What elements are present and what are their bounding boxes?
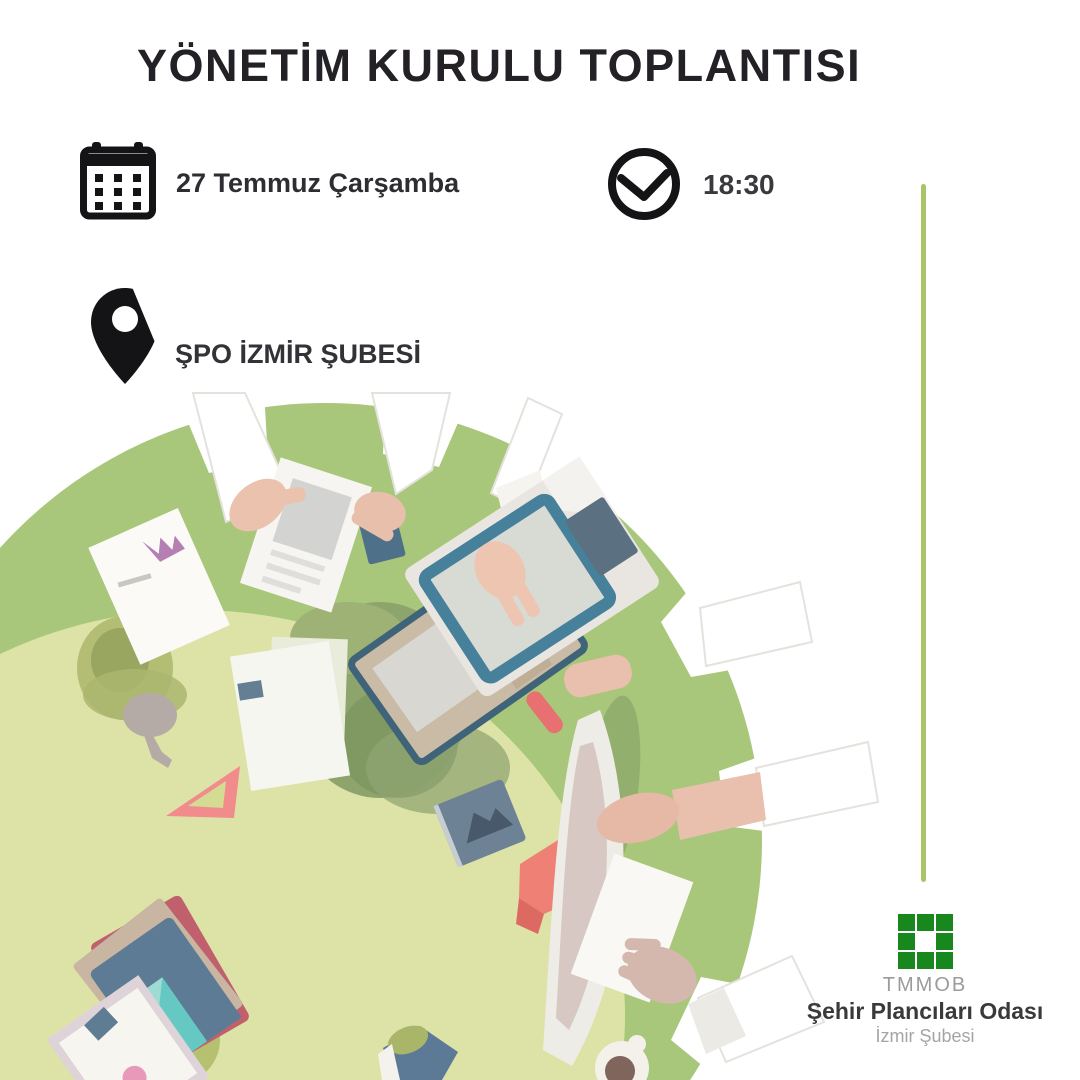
paper-front: [230, 641, 350, 791]
organization-logo: TMMOB Şehir Plancıları Odası İzmir Şubes…: [795, 914, 1055, 1047]
location-label: ŞPO İZMİR ŞUBESİ: [175, 339, 421, 370]
person-gap: [513, 247, 731, 518]
time-label: 18:30: [703, 169, 775, 201]
page-title: YÖNETİM KURULU TOPLANTISI: [137, 40, 861, 92]
date-label: 27 Temmuz Çarşamba: [176, 168, 459, 199]
logo-squares-icon: [898, 914, 953, 969]
accent-line: [921, 184, 926, 882]
logo-parent-org: TMMOB: [795, 974, 1055, 997]
logo-branch: İzmir Şubesi: [795, 1026, 1055, 1047]
logo-org-name: Şehir Plancıları Odası: [795, 998, 1055, 1025]
poster-canvas: YÖNETİM KURULU TOPLANTISI 27 Temmuz Çarş…: [0, 0, 1080, 1080]
